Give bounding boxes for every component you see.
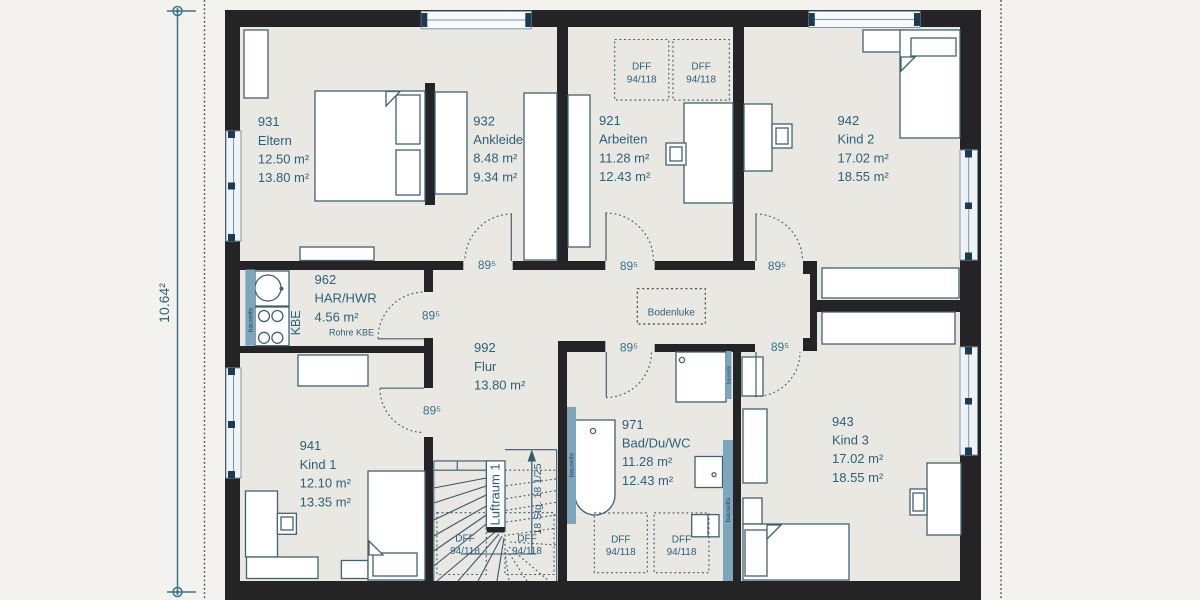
svg-text:18.55 m²: 18.55 m²: [832, 470, 884, 485]
svg-text:94/118: 94/118: [667, 547, 697, 558]
svg-text:Arbeiten: Arbeiten: [599, 132, 647, 147]
svg-text:94/118: 94/118: [627, 75, 657, 86]
svg-text:Bodenluke: Bodenluke: [648, 308, 696, 319]
svg-text:13.80 m²: 13.80 m²: [258, 170, 310, 185]
svg-text:12.43 m²: 12.43 m²: [622, 473, 674, 488]
svg-text:bauseits: bauseits: [727, 365, 733, 384]
svg-text:Kind 1: Kind 1: [300, 457, 337, 472]
svg-text:Kind 2: Kind 2: [838, 132, 875, 147]
svg-text:Bad/Du/WC: Bad/Du/WC: [622, 436, 691, 451]
svg-text:943: 943: [832, 414, 854, 429]
svg-text:11.28 m²: 11.28 m²: [599, 150, 650, 165]
svg-text:DFF: DFF: [632, 62, 651, 73]
svg-text:89⁵: 89⁵: [423, 404, 441, 418]
svg-text:12.10 m²: 12.10 m²: [300, 476, 352, 491]
svg-text:942: 942: [838, 113, 860, 128]
svg-text:941: 941: [300, 438, 322, 453]
svg-text:89⁵: 89⁵: [620, 341, 638, 355]
svg-text:921: 921: [599, 113, 621, 128]
svg-text:94/118: 94/118: [450, 546, 480, 557]
svg-text:89⁵: 89⁵: [771, 340, 789, 354]
svg-text:13.35 m²: 13.35 m²: [300, 494, 352, 509]
svg-text:971: 971: [622, 417, 644, 432]
svg-text:932: 932: [473, 113, 495, 128]
svg-text:18 Stg. 18 1/25: 18 Stg. 18 1/25: [532, 463, 544, 534]
svg-text:11.28 m²: 11.28 m²: [622, 454, 673, 469]
svg-text:HAR/HWR: HAR/HWR: [315, 291, 377, 306]
svg-text:Ankleide: Ankleide: [473, 132, 523, 147]
svg-text:89⁵: 89⁵: [620, 259, 638, 273]
svg-text:bauseits: bauseits: [569, 452, 576, 477]
svg-text:931: 931: [258, 114, 280, 129]
svg-text:Eltern: Eltern: [258, 133, 292, 148]
svg-text:KBE: KBE: [289, 310, 303, 335]
svg-text:DFF: DFF: [611, 535, 630, 546]
svg-text:10.64²: 10.64²: [156, 283, 172, 323]
svg-text:992: 992: [474, 340, 496, 355]
svg-text:962: 962: [315, 272, 337, 287]
svg-text:Rohre KBE: Rohre KBE: [329, 327, 374, 337]
svg-text:94/118: 94/118: [686, 75, 716, 86]
svg-text:Flur: Flur: [474, 359, 497, 374]
svg-text:89⁵: 89⁵: [422, 309, 440, 323]
svg-text:DFF: DFF: [517, 533, 536, 544]
svg-text:DFF: DFF: [672, 535, 691, 546]
svg-text:18.55 m²: 18.55 m²: [838, 169, 890, 184]
svg-text:8.48 m²: 8.48 m²: [473, 151, 518, 166]
svg-text:Luftraum 1: Luftraum 1: [488, 463, 503, 525]
svg-text:DFF: DFF: [455, 533, 474, 544]
svg-text:17.02 m²: 17.02 m²: [832, 451, 884, 466]
svg-text:17.02 m²: 17.02 m²: [838, 150, 890, 165]
svg-text:89⁵: 89⁵: [768, 259, 786, 273]
svg-text:13.80 m²: 13.80 m²: [474, 378, 526, 393]
svg-text:4.56 m²: 4.56 m²: [315, 309, 360, 324]
svg-text:bauseits: bauseits: [248, 307, 255, 332]
svg-text:9.34 m²: 9.34 m²: [473, 169, 518, 184]
svg-text:bauseits: bauseits: [725, 497, 732, 522]
svg-text:12.43 m²: 12.43 m²: [599, 169, 651, 184]
svg-text:12.50 m²: 12.50 m²: [258, 152, 310, 167]
svg-text:94/118: 94/118: [512, 546, 542, 557]
svg-text:94/118: 94/118: [606, 547, 636, 558]
svg-text:Kind 3: Kind 3: [832, 433, 869, 448]
svg-text:89⁵: 89⁵: [478, 258, 496, 272]
svg-text:DFF: DFF: [691, 62, 710, 73]
